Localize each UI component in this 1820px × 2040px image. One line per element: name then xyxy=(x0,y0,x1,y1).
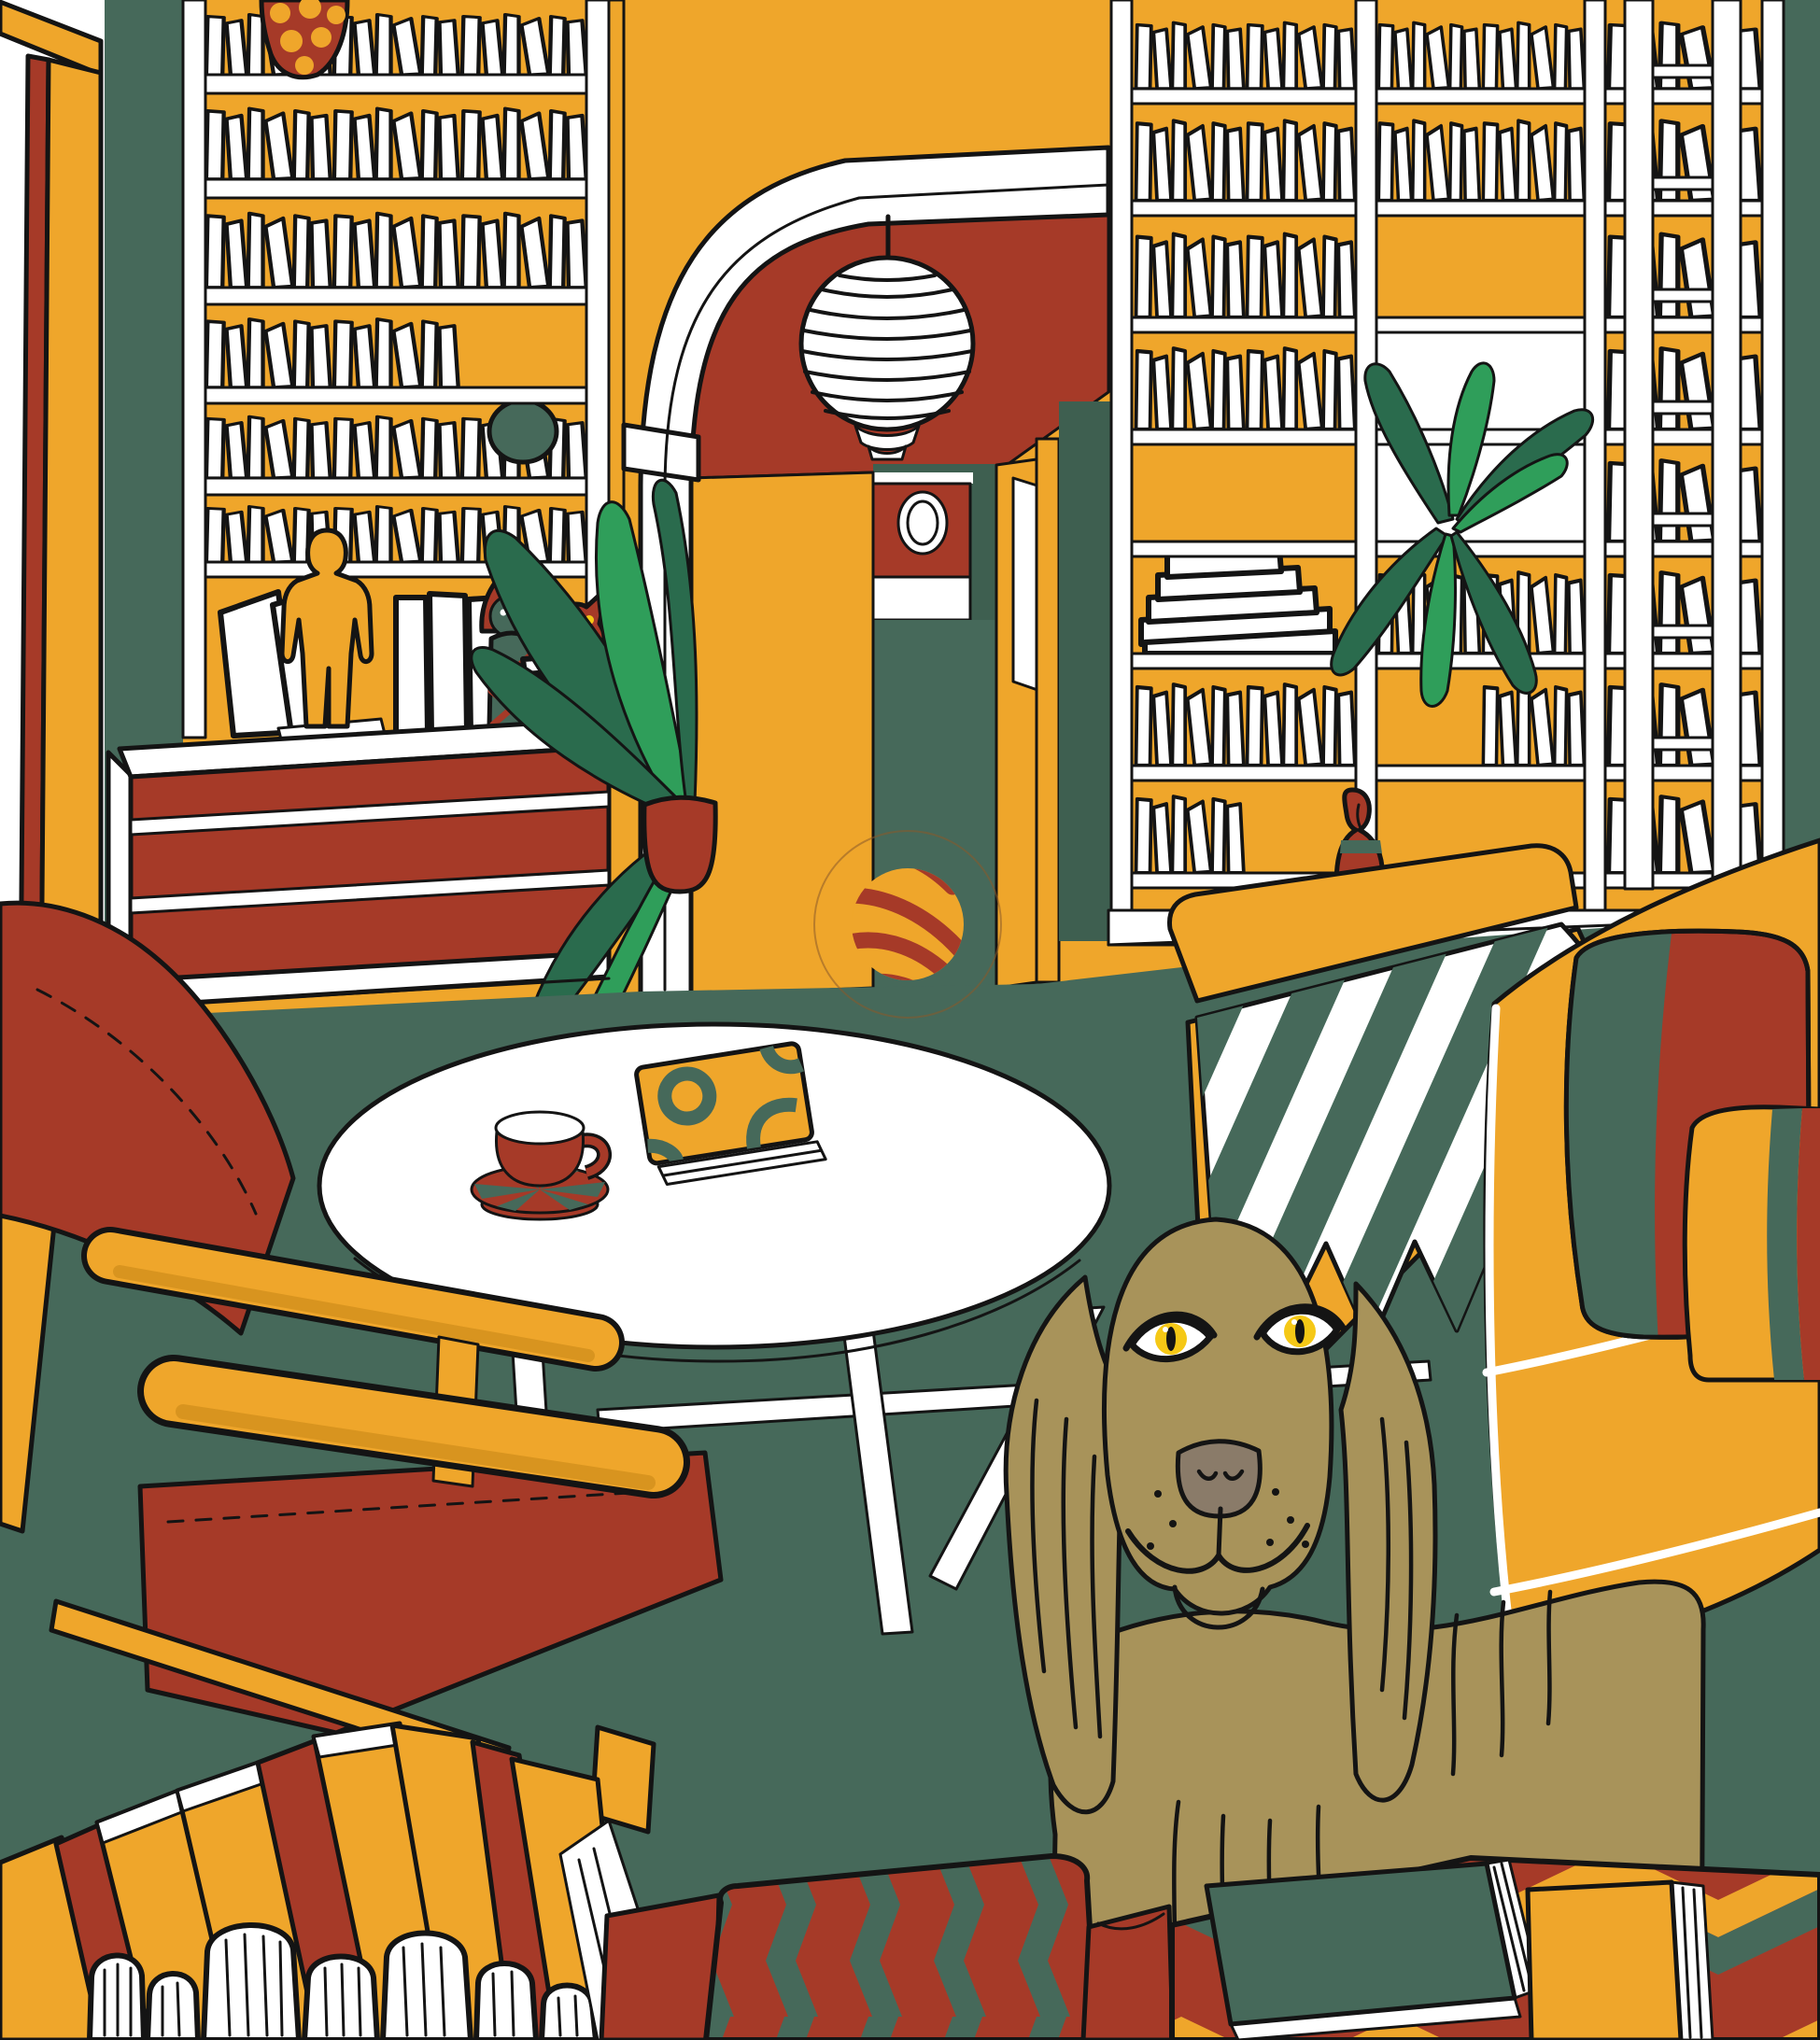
right-bookshelf xyxy=(1108,0,1784,945)
green-ball-ornament xyxy=(489,401,557,462)
ladder-rail xyxy=(1713,0,1741,889)
shelf-upright xyxy=(1762,0,1784,910)
shelf-upright xyxy=(1585,0,1605,910)
foreground-poufs xyxy=(601,1856,1820,2040)
ladder-rail xyxy=(1625,0,1653,889)
living-room-illustration xyxy=(0,0,1820,2040)
yellow-cushion xyxy=(1685,1107,1820,1380)
left-bookshelf xyxy=(108,0,624,1006)
door-frame-yellow xyxy=(41,60,101,1029)
hall-right-shadow xyxy=(1059,401,1111,941)
shelf-upright xyxy=(1356,0,1376,910)
green-book-cover xyxy=(1206,1864,1515,2024)
shelf-book xyxy=(396,598,428,734)
shelf-upright-left xyxy=(183,0,205,738)
open-white-door xyxy=(0,0,105,1036)
patterned-notebook xyxy=(635,1041,825,1187)
lantern-sphere xyxy=(801,258,973,429)
zigzag-pouf xyxy=(706,1856,1096,2040)
hall-wainscot xyxy=(871,577,970,620)
green-book xyxy=(1206,1860,1541,2040)
cup-rim xyxy=(496,1112,584,1144)
hall-right-wall xyxy=(1037,439,1059,982)
red-cloth xyxy=(601,1895,719,2040)
arch-molding-step xyxy=(624,425,698,480)
red-chest-of-drawers xyxy=(108,719,609,1006)
shelf-upright xyxy=(1111,0,1132,910)
arch-lower-yellow-wall xyxy=(691,472,873,995)
yellow-book-cover xyxy=(1528,1882,1681,2040)
yellow-book xyxy=(1528,1882,1713,2040)
dog-nose xyxy=(1178,1442,1260,1516)
chest-front xyxy=(131,747,609,984)
plant-pot xyxy=(644,797,715,892)
hall-ceiling-strip xyxy=(868,472,973,484)
illustration-stage xyxy=(0,0,1820,2040)
pouf-gap-cushion xyxy=(1083,1906,1173,2040)
shelf-book xyxy=(430,594,467,734)
